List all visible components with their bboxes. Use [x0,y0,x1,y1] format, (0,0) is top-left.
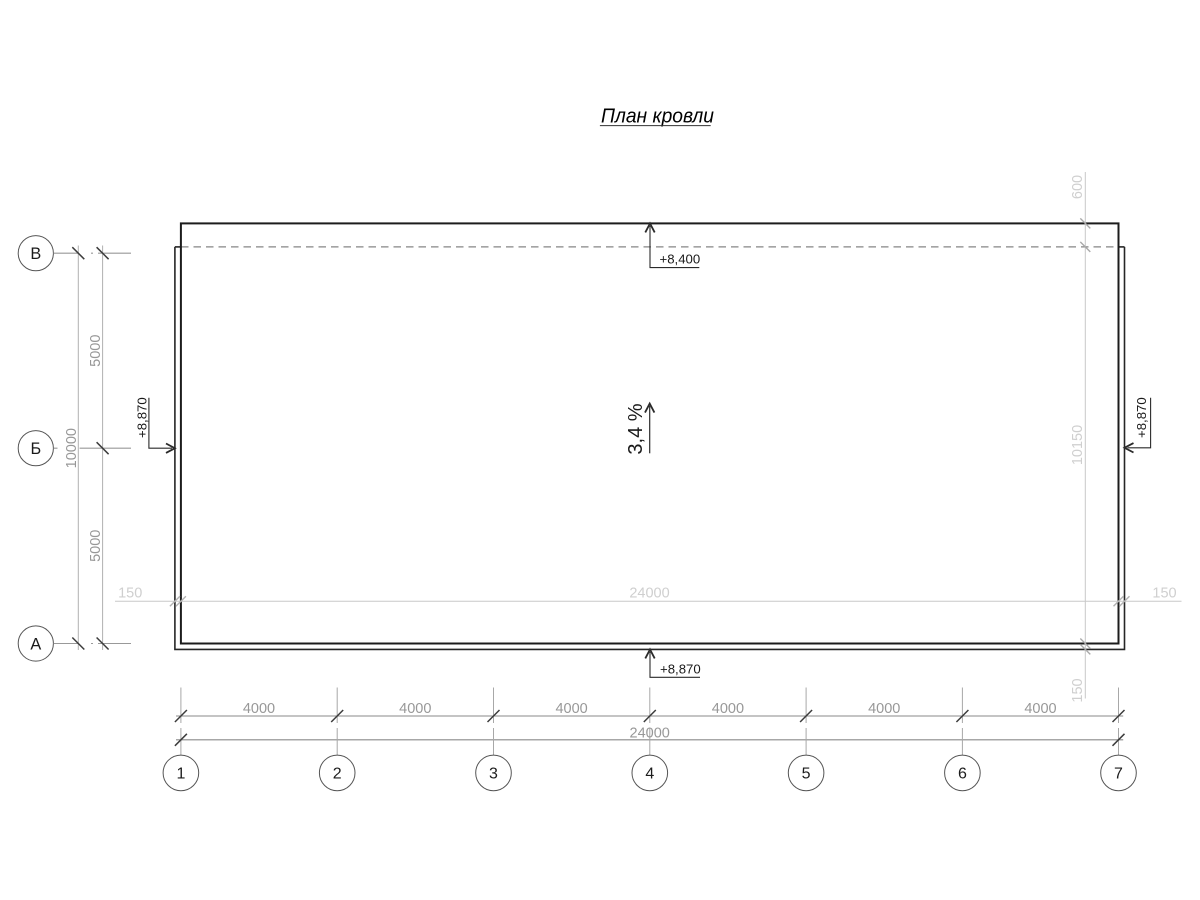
svg-text:6: 6 [958,766,967,783]
svg-text:4000: 4000 [399,701,431,717]
svg-text:600: 600 [1070,175,1086,199]
svg-text:3,4 %: 3,4 % [625,403,647,454]
svg-text:7: 7 [1114,766,1123,783]
svg-text:План кровли: План кровли [601,106,714,128]
svg-text:24000: 24000 [630,725,670,741]
svg-text:3: 3 [489,766,498,783]
svg-text:4000: 4000 [712,701,744,717]
svg-text:+8,870: +8,870 [1134,397,1149,438]
svg-text:150: 150 [1152,586,1176,602]
svg-text:+8,400: +8,400 [660,252,701,267]
svg-text:2: 2 [333,766,342,783]
svg-text:4000: 4000 [243,701,275,717]
svg-text:150: 150 [118,586,142,602]
svg-text:24000: 24000 [629,586,669,602]
svg-text:+8,870: +8,870 [660,662,701,677]
svg-text:10000: 10000 [64,428,80,468]
svg-text:10150: 10150 [1070,425,1086,465]
svg-text:4000: 4000 [868,701,900,717]
svg-text:+8,870: +8,870 [134,397,149,438]
svg-text:В: В [30,245,41,263]
svg-text:4000: 4000 [555,701,587,717]
svg-text:5000: 5000 [88,530,104,562]
svg-text:5: 5 [802,766,811,783]
svg-text:150: 150 [1070,678,1086,702]
svg-text:5000: 5000 [88,335,104,367]
svg-text:А: А [30,635,41,653]
svg-text:4: 4 [645,766,654,783]
svg-text:1: 1 [176,766,185,783]
svg-text:4000: 4000 [1024,701,1056,717]
svg-text:Б: Б [30,440,41,458]
